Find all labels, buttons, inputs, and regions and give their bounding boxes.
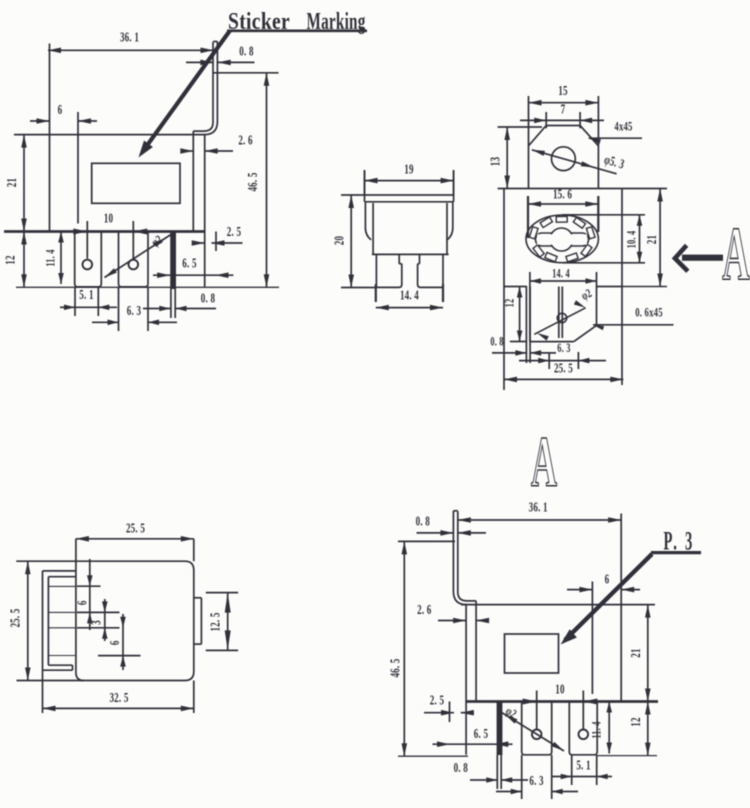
svg-text:6. 5: 6. 5 xyxy=(474,728,488,742)
svg-text:46. 5: 46. 5 xyxy=(247,172,261,191)
svg-text:2. 5: 2. 5 xyxy=(227,226,241,240)
svg-text:15: 15 xyxy=(558,85,567,99)
svg-text:0. 8: 0. 8 xyxy=(239,45,253,59)
svg-text:A: A xyxy=(722,211,749,296)
svg-text:46. 5: 46. 5 xyxy=(389,658,403,677)
svg-text:11. 4: 11. 4 xyxy=(45,249,58,267)
svg-text:0. 6x45: 0. 6x45 xyxy=(635,306,663,320)
svg-text:5. 1: 5. 1 xyxy=(79,289,93,303)
svg-text:21: 21 xyxy=(6,178,20,187)
svg-text:12: 12 xyxy=(630,717,644,726)
svg-text:10. 4: 10. 4 xyxy=(626,230,639,248)
svg-text:A: A xyxy=(531,423,557,503)
svg-text:25. 5: 25. 5 xyxy=(126,522,145,536)
svg-text:4x45: 4x45 xyxy=(614,120,632,134)
svg-text:20: 20 xyxy=(333,236,347,245)
svg-text:5. 1: 5. 1 xyxy=(576,759,590,773)
svg-text:12: 12 xyxy=(504,299,517,308)
svg-text:6. 3: 6. 3 xyxy=(557,343,570,356)
svg-text:36. 1: 36. 1 xyxy=(529,501,548,515)
svg-text:6. 3: 6. 3 xyxy=(127,305,141,319)
svg-text:0. 8: 0. 8 xyxy=(201,292,215,306)
svg-text:6: 6 xyxy=(109,640,123,645)
svg-text:6: 6 xyxy=(58,104,63,118)
svg-text:6: 6 xyxy=(605,573,610,587)
svg-text:6. 5: 6. 5 xyxy=(182,257,196,271)
svg-text:15. 6: 15. 6 xyxy=(553,188,572,202)
svg-text:21: 21 xyxy=(646,235,660,244)
svg-text:0. 8: 0. 8 xyxy=(454,762,468,776)
svg-text:10: 10 xyxy=(104,212,113,226)
svg-text:0. 8: 0. 8 xyxy=(490,336,503,349)
svg-text:25. 5: 25. 5 xyxy=(554,362,573,376)
svg-text:2. 6: 2. 6 xyxy=(238,134,252,148)
svg-text:19: 19 xyxy=(404,163,413,177)
svg-text:14. 4: 14. 4 xyxy=(552,268,570,281)
svg-text:6: 6 xyxy=(76,600,90,605)
svg-text:21: 21 xyxy=(630,648,644,657)
svg-text:6. 3: 6. 3 xyxy=(529,775,543,789)
svg-text:12. 5: 12. 5 xyxy=(209,612,223,631)
svg-text:0. 8: 0. 8 xyxy=(416,515,430,529)
svg-text:32. 5: 32. 5 xyxy=(109,692,128,706)
svg-text:3: 3 xyxy=(90,620,104,625)
svg-text:36. 1: 36. 1 xyxy=(120,31,139,45)
svg-text:10: 10 xyxy=(555,683,564,697)
svg-text:7: 7 xyxy=(561,103,566,117)
svg-text:2. 6: 2. 6 xyxy=(417,604,431,618)
svg-text:12: 12 xyxy=(4,255,18,264)
svg-text:13: 13 xyxy=(489,157,503,166)
svg-text:11. 4: 11. 4 xyxy=(591,721,604,739)
svg-text:14. 4: 14. 4 xyxy=(400,289,419,303)
svg-text:2. 5: 2. 5 xyxy=(430,694,444,708)
svg-text:25. 5: 25. 5 xyxy=(9,608,23,627)
